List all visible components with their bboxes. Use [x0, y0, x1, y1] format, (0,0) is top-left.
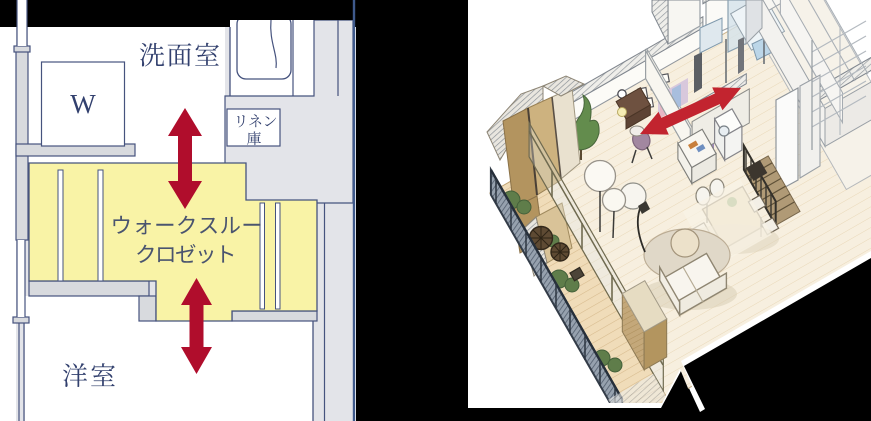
svg-text:W: W: [70, 89, 96, 119]
